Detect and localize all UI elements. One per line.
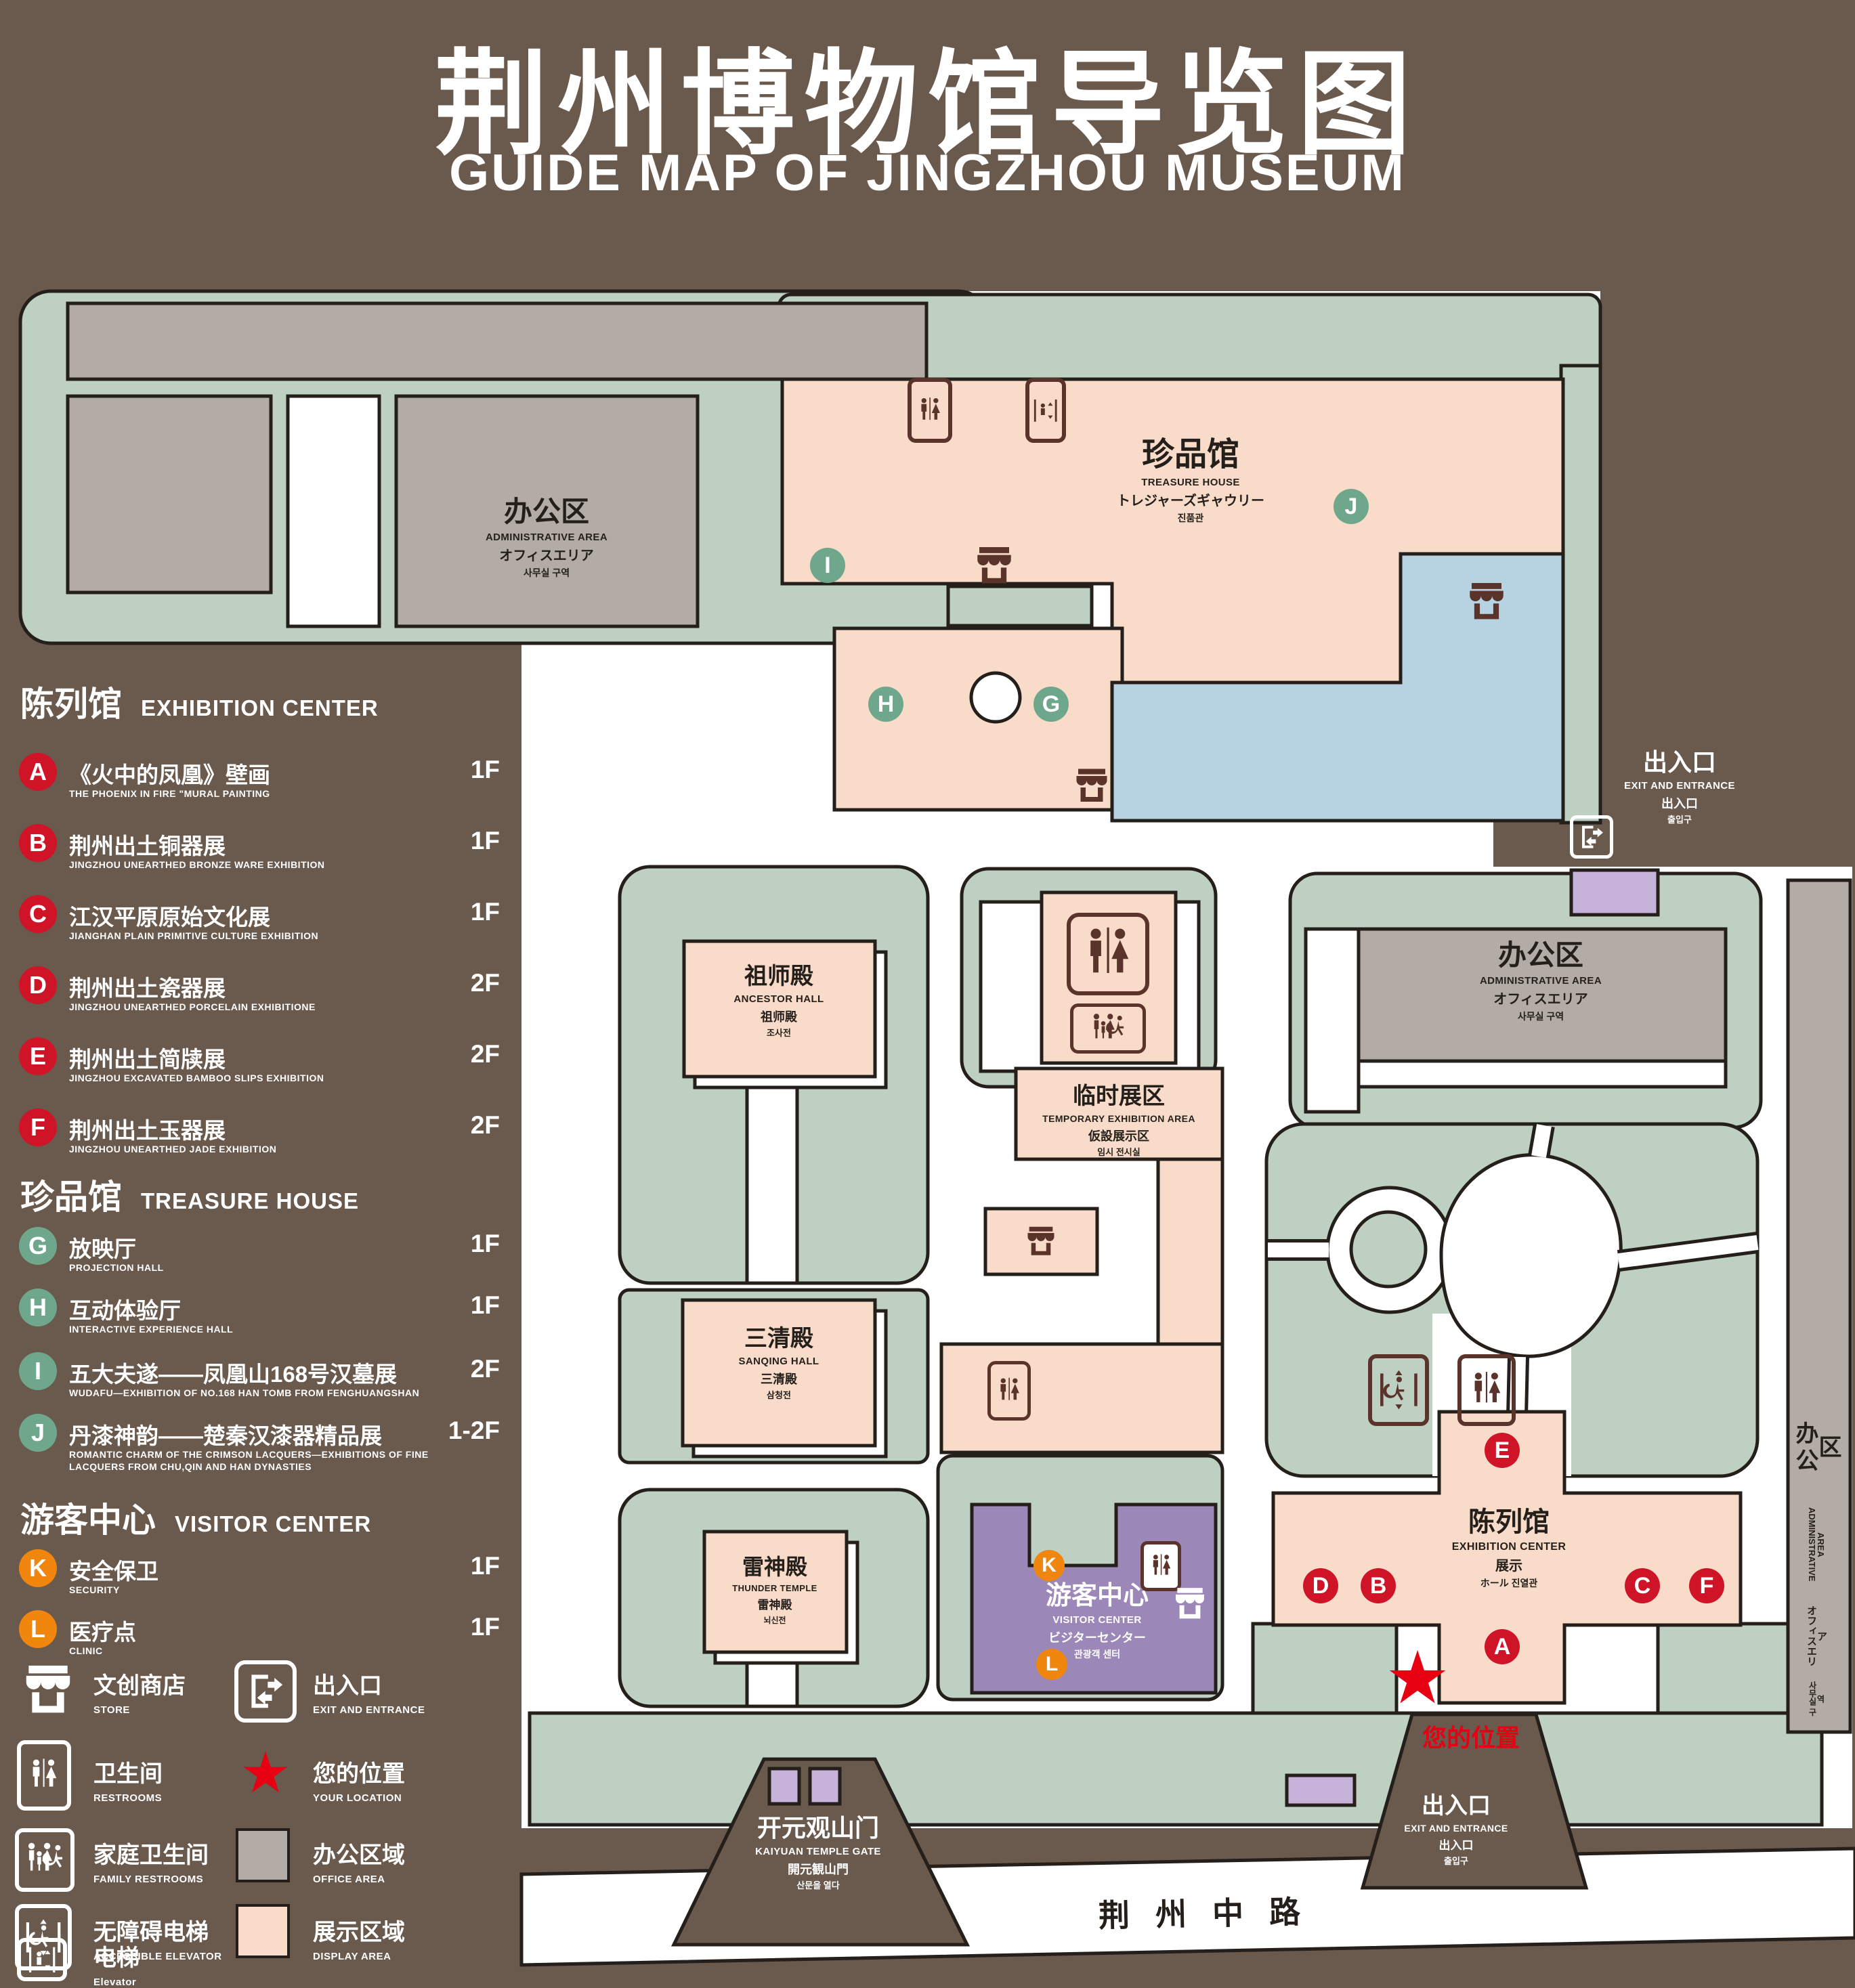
- building-admin-nw-left: [68, 396, 271, 592]
- label-your-location: 您的位置: [1422, 1719, 1520, 1754]
- page-subtitle: GUIDE MAP OF JINGZHOU MUSEUM: [0, 144, 1855, 202]
- path-pond: [971, 673, 1020, 722]
- marker-b: B: [1361, 1568, 1396, 1603]
- path-admin-center: [1359, 1061, 1726, 1087]
- courtyard-admin-nw: [288, 396, 379, 626]
- legend-section-en: EXHIBITION CENTER: [141, 695, 379, 720]
- lawn-east-strip: [1561, 366, 1600, 823]
- label-admin-east: 办公区 ADMINISTRATIVE AREA オフィスエリア 사무실 구역: [1793, 1408, 1839, 1720]
- northeast-exit-icon: [1570, 815, 1613, 859]
- central-family-restrooms-icon: [1070, 1003, 1146, 1054]
- central-restrooms-icon: [1067, 913, 1149, 995]
- office-area-swatch: [236, 1828, 290, 1882]
- marker-i: I: [810, 548, 845, 583]
- legend-section-visitor: 游客中心VISITOR CENTER: [20, 1493, 371, 1542]
- marker-c: C: [1625, 1568, 1660, 1603]
- label-temporary-exhibition: 临时展区 TEMPORARY EXHIBITION AREA 仮設展示区 임시 …: [1042, 1085, 1195, 1157]
- lawn-tongue: [948, 586, 1092, 626]
- badge-f: F: [19, 1108, 57, 1146]
- marker-a: A: [1485, 1629, 1520, 1664]
- label-sanqing-hall: 三清殿 SANQING HALL 三清殿 삼청전: [739, 1327, 819, 1400]
- legend-exit-entrance: 出入口 EXIT AND ENTRANCE: [313, 1667, 425, 1716]
- building-temporary-leg: [1158, 1159, 1222, 1344]
- marker-d: D: [1303, 1568, 1338, 1603]
- label-road: 荆州中路: [1098, 1887, 1326, 1936]
- legend-restrooms: 卫生间 RESTROOMS: [93, 1755, 163, 1804]
- gate-pillar-2: [810, 1769, 840, 1804]
- label-exit-south: 出入口 EXIT AND ENTRANCE 出入口 출입구: [1404, 1794, 1508, 1865]
- treasure-store-icon-2: [1464, 579, 1509, 624]
- visitor-store-icon: [1171, 1584, 1209, 1622]
- guide-map-page: { "title": {"cjk": "荆州博物馆导览图", "en": "GU…: [0, 0, 1855, 1983]
- badge-d: D: [19, 966, 57, 1004]
- marker-j: J: [1334, 489, 1369, 524]
- path-ancestor-corridor: [747, 1078, 797, 1283]
- elevator-icon: [17, 1938, 67, 1981]
- restrooms-icon: [17, 1740, 71, 1811]
- map-your-location-star: ★: [1385, 1641, 1451, 1714]
- label-admin-nw: 办公区 ADMINISTRATIVE AREA オフィスエリア 사무실 구역: [486, 498, 607, 578]
- label-ancestor-hall: 祖师殿 ANCESTOR HALL 祖师殿 조사전: [733, 965, 824, 1037]
- label-exhibition-center: 陈列馆 EXHIBITION CENTER 展示 ホール 진열관: [1452, 1509, 1566, 1588]
- label-thunder-temple: 雷神殿 THUNDER TEMPLE 雷神殿 뇌신전: [732, 1556, 817, 1624]
- legend-family-restrooms: 家庭卫生间 FAMILY RESTROOMS: [93, 1836, 209, 1885]
- visitor-restrooms-icon: [1140, 1541, 1181, 1591]
- treasure-elevator-icon: [1025, 378, 1066, 443]
- label-admin-center: 办公区 ADMINISTRATIVE AREA オフィスエリア 사무실 구역: [1480, 941, 1602, 1021]
- lawn-flank-west: [1253, 1624, 1396, 1714]
- badge-e: E: [19, 1037, 57, 1075]
- legend-elevator: 电梯 Elevator: [93, 1939, 140, 1988]
- label-kaiyuan-gate: 开元观山门 KAIYUAN TEMPLE GATE 開元観山門 산문을 열다: [755, 1816, 881, 1890]
- gate-purple-ne: [1571, 870, 1658, 915]
- gate-pillar-1: [769, 1769, 799, 1804]
- badge-k: K: [19, 1549, 57, 1587]
- badge-l: L: [19, 1610, 57, 1648]
- treasure-store-icon-3: [1071, 765, 1112, 806]
- marker-k: K: [1033, 1550, 1065, 1581]
- marker-h: H: [868, 687, 903, 722]
- legend-office-area: 办公区域 OFFICE AREA: [313, 1836, 405, 1885]
- marker-l: L: [1036, 1649, 1067, 1680]
- badge-g: G: [19, 1227, 57, 1265]
- exit-entrance-icon: [234, 1660, 297, 1723]
- display-area-swatch: [236, 1904, 290, 1958]
- marker-g: G: [1033, 687, 1069, 722]
- badge-a: A: [19, 753, 57, 791]
- legend-section-exhibition: 陈列馆EXHIBITION CENTER: [20, 677, 379, 726]
- legend-store: 文创商店 STORE: [93, 1667, 186, 1716]
- lawn-south-band: [530, 1713, 1822, 1825]
- legend-section-treasure: 珍品馆TREASURE HOUSE: [20, 1170, 359, 1219]
- gate-pillar-sw1: [1287, 1775, 1355, 1805]
- treasure-restrooms-icon: [908, 378, 952, 443]
- treasure-store-icon-1: [972, 543, 1017, 588]
- temporary-restrooms-icon: [987, 1361, 1031, 1421]
- building-temporary-lower: [941, 1344, 1222, 1452]
- brown-top-right: [1600, 288, 1855, 738]
- courtyard-admin-center: [1306, 929, 1359, 1112]
- marker-e: E: [1485, 1433, 1520, 1468]
- badge-c: C: [19, 895, 57, 933]
- badge-b: B: [19, 824, 57, 862]
- label-visitor-center: 游客中心 VISITOR CENTER ビジターセンター 관광객 센터: [1046, 1583, 1149, 1659]
- kiosk-store-icon: [1023, 1224, 1059, 1259]
- your-location-star: ★: [240, 1744, 291, 1801]
- badge-h: H: [19, 1289, 57, 1326]
- store-icon: [19, 1660, 77, 1719]
- exhibition-restrooms-icon: [1457, 1354, 1516, 1426]
- family-restrooms-icon: [15, 1828, 74, 1892]
- label-treasure-house: 珍品馆 TREASURE HOUSE トレジャーズギャウリー 진품관: [1117, 439, 1264, 523]
- marker-f: F: [1689, 1568, 1724, 1603]
- building-admin-nw-top: [68, 303, 926, 379]
- label-exit-northeast: 出入口 EXIT AND ENTRANCE 出入口 출입구: [1624, 750, 1735, 824]
- badge-i: I: [19, 1352, 57, 1390]
- legend-display-area: 展示区域 DISPLAY AREA: [313, 1914, 405, 1962]
- exhibition-accessible-elevator-icon: [1368, 1354, 1429, 1426]
- garden-island: [1351, 1212, 1426, 1287]
- badge-j: J: [19, 1414, 57, 1452]
- legend-your-location: 您的位置 YOUR LOCATION: [313, 1755, 405, 1804]
- garden-pond: [1441, 1155, 1621, 1356]
- legend-section-cjk: 陈列馆: [20, 685, 122, 723]
